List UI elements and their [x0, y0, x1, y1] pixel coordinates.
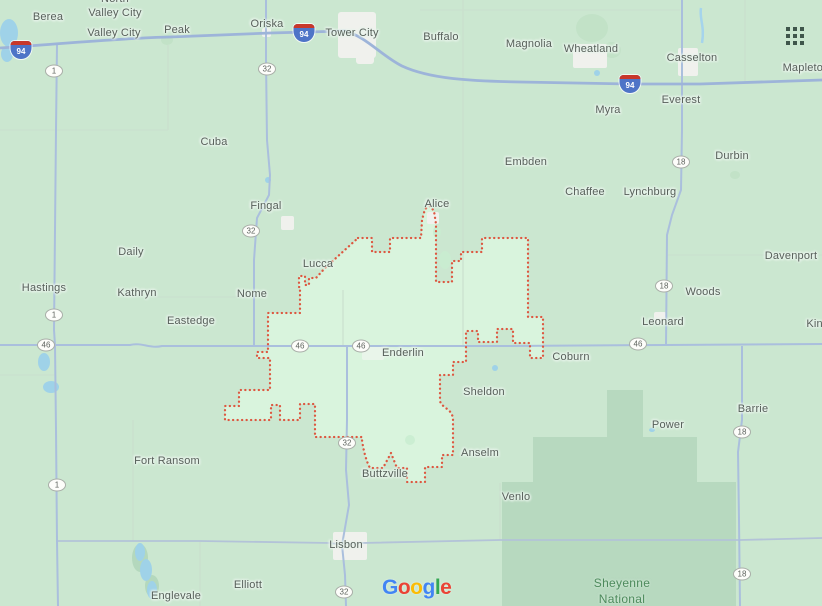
- google-logo[interactable]: Google: [382, 576, 451, 600]
- interstate-shield-94: 94: [620, 75, 641, 93]
- town-label-nome[interactable]: Nome: [237, 287, 267, 301]
- state-route-shield-32: 32: [258, 63, 276, 76]
- map-canvas[interactable]: BereaNorth Valley CityValley CityPeakOri…: [0, 0, 822, 606]
- town-label-berea[interactable]: Berea: [33, 10, 63, 24]
- town-label-anselm[interactable]: Anselm: [461, 446, 499, 460]
- town-label-myra[interactable]: Myra: [595, 103, 620, 117]
- town-label-eastedge[interactable]: Eastedge: [167, 314, 215, 328]
- town-label-hastings[interactable]: Hastings: [22, 281, 66, 295]
- town-label-tower-city[interactable]: Tower City: [325, 26, 378, 40]
- town-label-peak[interactable]: Peak: [164, 23, 190, 37]
- town-label-englevale[interactable]: Englevale: [151, 589, 201, 603]
- state-route-shield-46: 46: [291, 340, 309, 353]
- town-label-sheldon[interactable]: Sheldon: [463, 385, 505, 399]
- town-label-elliott[interactable]: Elliott: [234, 578, 262, 592]
- town-label-davenport[interactable]: Davenport: [765, 249, 818, 263]
- apps-grid-dot: [793, 34, 797, 38]
- state-route-shield-18: 18: [672, 156, 690, 169]
- state-route-shield-46: 46: [352, 340, 370, 353]
- state-route-shield-18: 18: [655, 280, 673, 293]
- google-logo-letter: G: [382, 576, 398, 599]
- town-label-buttzville[interactable]: Buttzville: [362, 467, 408, 481]
- town-label-mapleton[interactable]: Mapleton: [783, 61, 822, 75]
- town-label-cuba[interactable]: Cuba: [200, 135, 227, 149]
- apps-grid-dot: [786, 27, 790, 31]
- apps-grid-dot: [800, 27, 804, 31]
- town-label-daily[interactable]: Daily: [118, 245, 143, 259]
- town-label-lucca[interactable]: Lucca: [303, 257, 333, 271]
- apps-grid-icon[interactable]: [786, 27, 804, 45]
- google-logo-letter: g: [423, 576, 435, 599]
- town-label-oriska[interactable]: Oriska: [251, 17, 284, 31]
- interstate-shield-94: 94: [294, 24, 315, 42]
- town-label-alice[interactable]: Alice: [425, 197, 450, 211]
- town-label-coburn[interactable]: Coburn: [552, 350, 589, 364]
- apps-grid-dot: [793, 27, 797, 31]
- town-label-buffalo[interactable]: Buffalo: [423, 30, 458, 44]
- apps-grid-dot: [786, 41, 790, 45]
- apps-grid-dot: [786, 34, 790, 38]
- town-label-chaffee[interactable]: Chaffee: [565, 185, 605, 199]
- interstate-shield-94: 94: [11, 41, 32, 59]
- town-label-fort-ransom[interactable]: Fort Ransom: [134, 454, 200, 468]
- town-label-lynchburg[interactable]: Lynchburg: [624, 185, 677, 199]
- apps-grid-dot: [793, 41, 797, 45]
- town-label-fingal[interactable]: Fingal: [250, 199, 281, 213]
- state-route-shield-46: 46: [629, 338, 647, 351]
- town-label-valley-city[interactable]: Valley City: [87, 26, 140, 40]
- town-label-leonard[interactable]: Leonard: [642, 315, 684, 329]
- town-label-lisbon[interactable]: Lisbon: [329, 538, 363, 552]
- state-route-shield-1: 1: [45, 309, 63, 322]
- apps-grid-dot: [800, 41, 804, 45]
- state-route-shield-1: 1: [45, 65, 63, 78]
- town-label-woods[interactable]: Woods: [685, 285, 720, 299]
- google-logo-letter: o: [410, 576, 422, 599]
- town-label-power[interactable]: Power: [652, 418, 684, 432]
- town-label-kathryn[interactable]: Kathryn: [117, 286, 156, 300]
- town-label-kindred[interactable]: Kindred: [806, 317, 822, 331]
- town-label-casselton[interactable]: Casselton: [667, 51, 718, 65]
- area-label-sheyenne-national: Sheyenne National: [594, 575, 650, 606]
- labels-layer: BereaNorth Valley CityValley CityPeakOri…: [0, 0, 822, 606]
- state-route-shield-46: 46: [37, 339, 55, 352]
- town-label-north-valley-city[interactable]: North Valley City: [88, 0, 141, 20]
- apps-grid-dot: [800, 34, 804, 38]
- town-label-enderlin[interactable]: Enderlin: [382, 346, 424, 360]
- state-route-shield-32: 32: [242, 225, 260, 238]
- town-label-wheatland[interactable]: Wheatland: [564, 42, 618, 56]
- town-label-durbin[interactable]: Durbin: [715, 149, 749, 163]
- state-route-shield-1: 1: [48, 479, 66, 492]
- state-route-shield-32: 32: [335, 586, 353, 599]
- state-route-shield-18: 18: [733, 426, 751, 439]
- town-label-magnolia[interactable]: Magnolia: [506, 37, 552, 51]
- town-label-embden[interactable]: Embden: [505, 155, 547, 169]
- town-label-venlo[interactable]: Venlo: [502, 490, 531, 504]
- state-route-shield-18: 18: [733, 568, 751, 581]
- town-label-barrie[interactable]: Barrie: [738, 402, 769, 416]
- google-logo-letter: o: [398, 576, 410, 599]
- google-logo-letter: e: [440, 576, 451, 599]
- state-route-shield-32: 32: [338, 437, 356, 450]
- town-label-everest[interactable]: Everest: [662, 93, 701, 107]
